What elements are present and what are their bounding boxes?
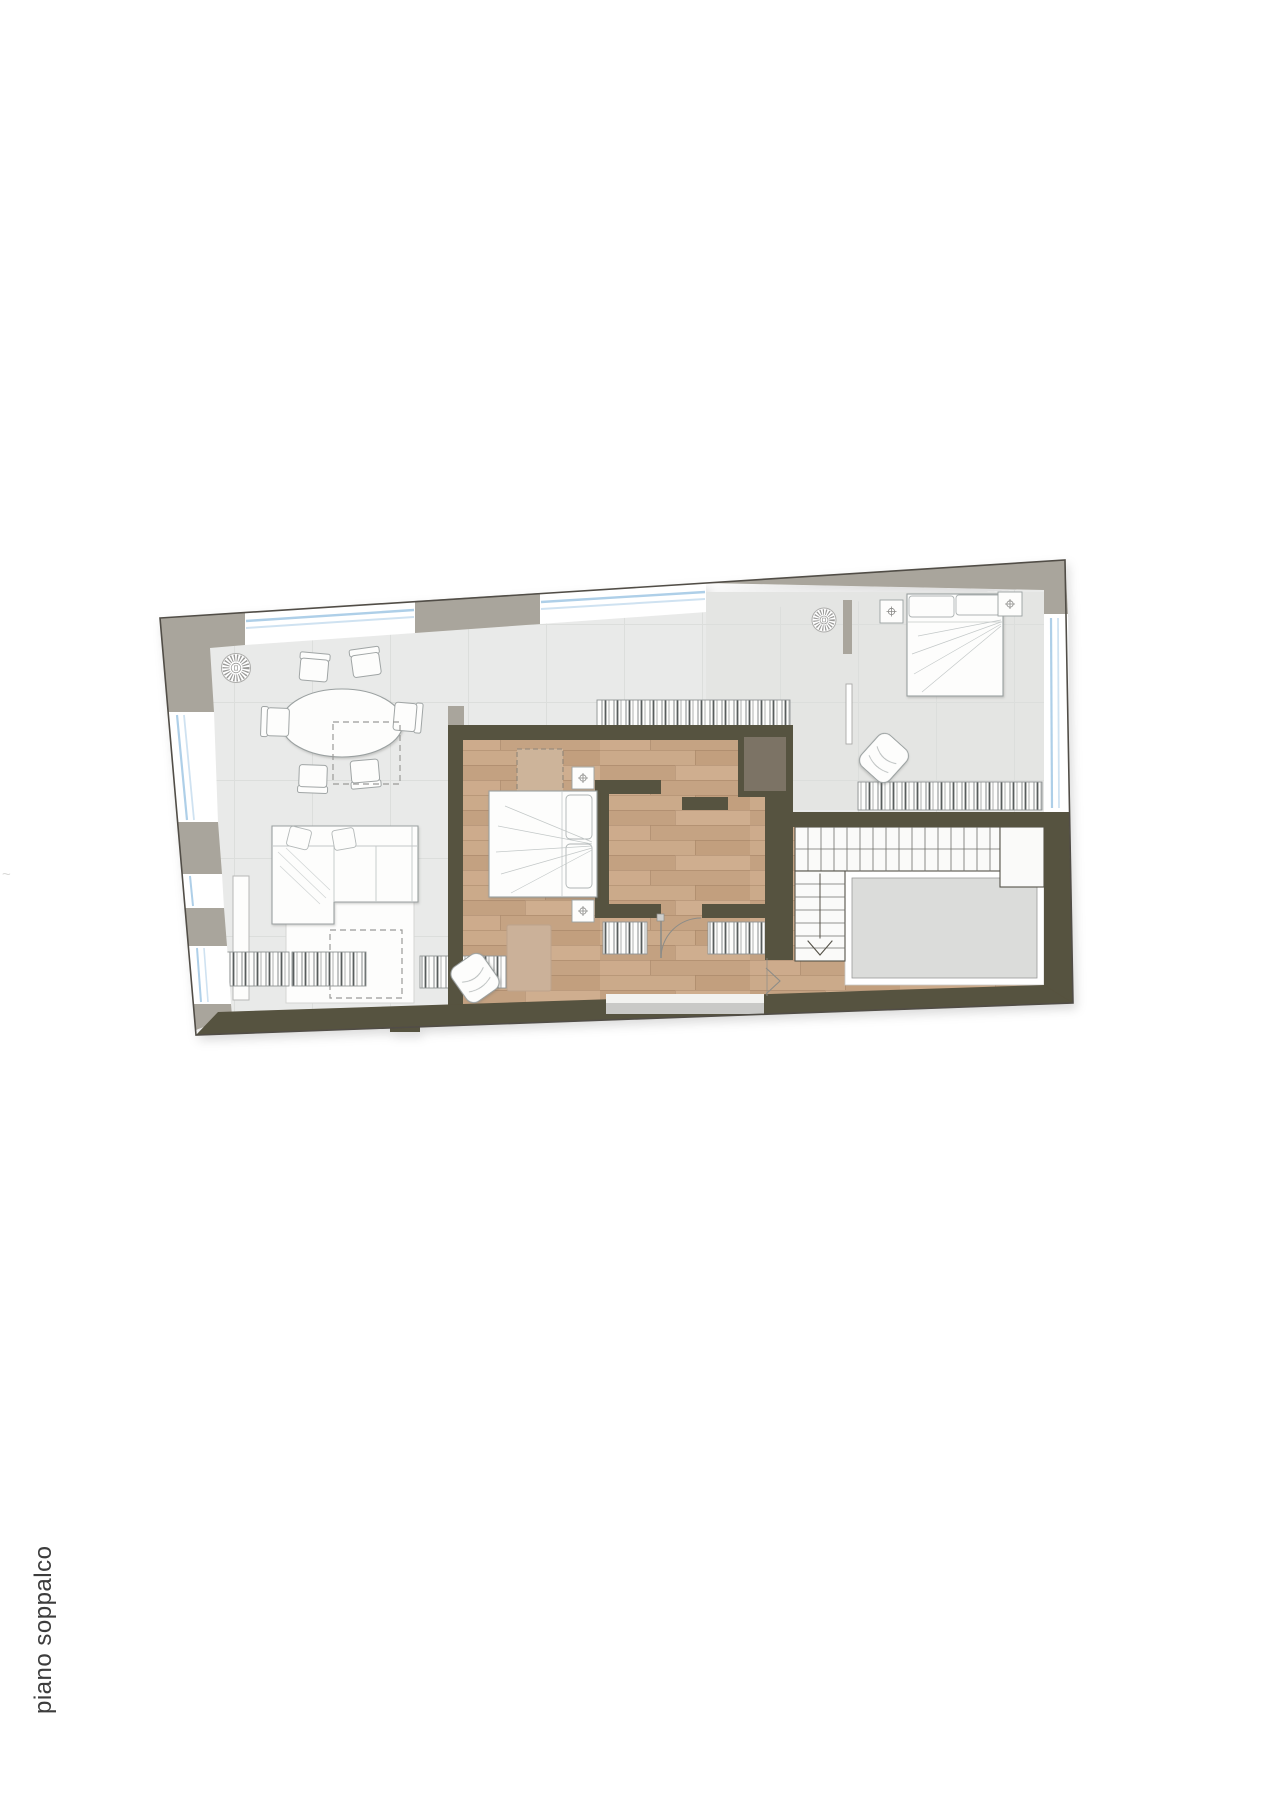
dining-chair <box>393 701 424 733</box>
dining-chair <box>349 759 381 790</box>
plan-body <box>160 560 1073 1035</box>
bed-mezzanine <box>489 791 597 897</box>
glass-divider <box>846 684 852 744</box>
closet-niche <box>738 731 792 797</box>
bed-top-bedroom <box>907 594 1003 696</box>
tan-rug <box>507 925 551 991</box>
dining-table-oval <box>281 689 403 757</box>
bottom-niche <box>606 994 764 1014</box>
nightstand-lamp <box>572 900 594 922</box>
stair-landing <box>1000 827 1044 887</box>
void-opening <box>845 871 1044 985</box>
radiator-bottom-left-2 <box>292 952 366 986</box>
dining-chair <box>260 706 289 737</box>
floor-plan <box>0 0 1280 1810</box>
dining-chair <box>349 646 383 678</box>
nightstand-lamp <box>998 592 1022 616</box>
stray-mark: ~ <box>2 866 11 883</box>
page: piano soppalco ~ <box>0 0 1280 1810</box>
nightstand-lamp <box>572 767 594 789</box>
floor-label: piano soppalco <box>30 1546 58 1714</box>
nightstand-lamp <box>880 600 903 623</box>
radiator-bedroom <box>858 782 1042 810</box>
ceiling-fan-icon <box>222 654 251 683</box>
dining-chair <box>297 764 328 793</box>
radiator-corridor-2 <box>708 922 766 954</box>
radiator-corridor-1 <box>603 922 647 954</box>
dining-set <box>281 689 403 757</box>
ceiling-fan-icon <box>812 608 836 632</box>
floor-plan-svg <box>0 0 1280 1810</box>
dining-chair <box>298 652 330 683</box>
wall-stub-bedroom <box>843 600 852 654</box>
